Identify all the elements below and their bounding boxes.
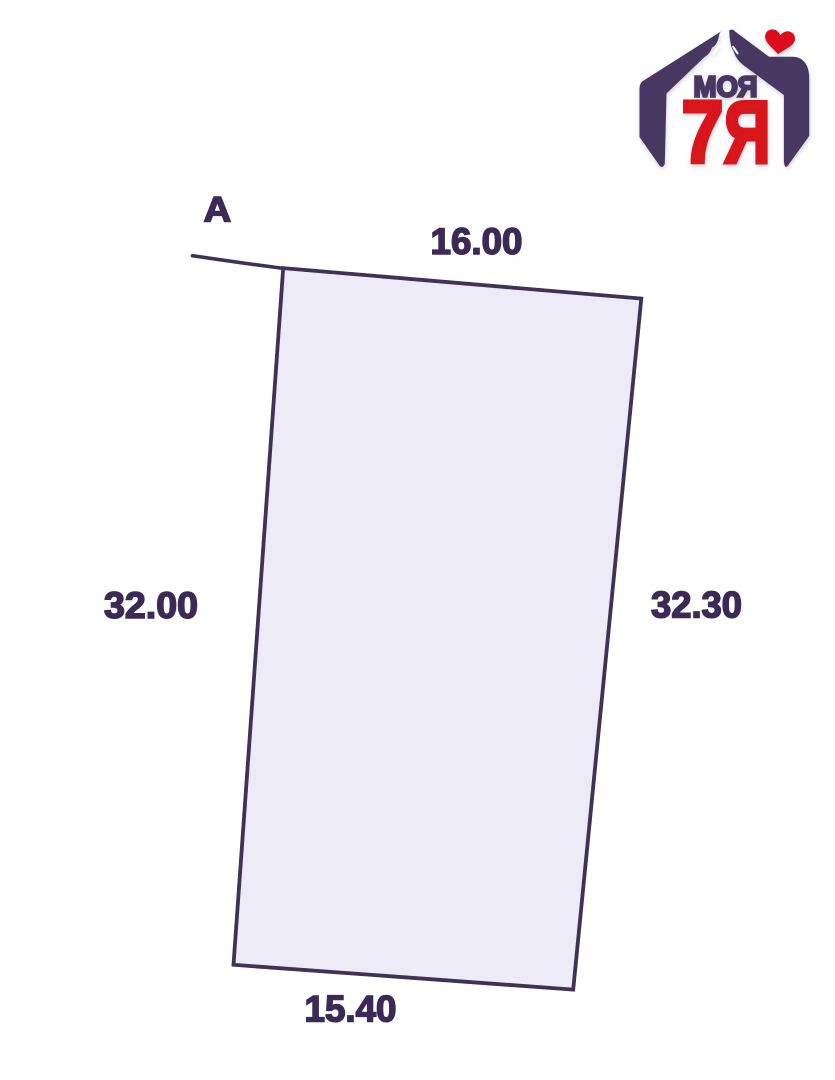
svg-text:Я: Я (724, 83, 771, 182)
svg-text:15.40: 15.40 (305, 988, 397, 1030)
svg-text:32.30: 32.30 (651, 584, 742, 626)
svg-text:32.00: 32.00 (104, 584, 198, 626)
svg-text:A: A (204, 190, 232, 229)
svg-text:7: 7 (682, 83, 724, 182)
svg-text:16.00: 16.00 (431, 220, 523, 262)
